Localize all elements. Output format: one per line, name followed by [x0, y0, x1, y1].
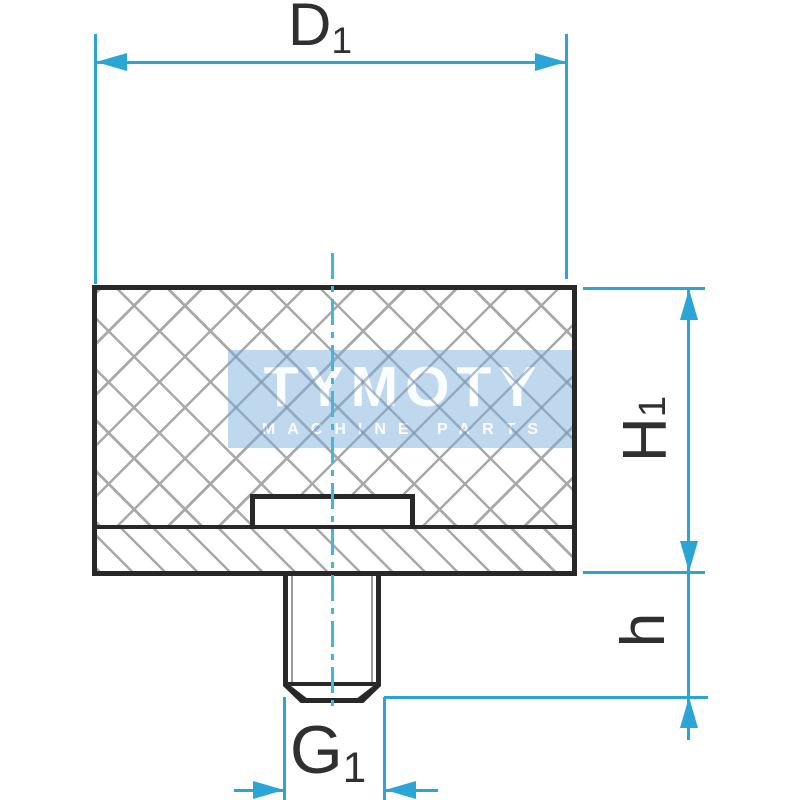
h1-label: H1	[610, 349, 680, 509]
d1-arrowhead-left	[96, 53, 127, 71]
h1-arrowhead-bottom	[680, 541, 698, 572]
thread-minor-line-right	[371, 576, 373, 682]
h-arrowhead-bottom	[680, 697, 698, 728]
centerline	[331, 253, 334, 706]
d1-label: D1	[240, 0, 400, 65]
h1-label-sub: 1	[631, 396, 675, 417]
d1-extension-line-left	[94, 34, 97, 284]
h-label-main: h	[608, 613, 679, 647]
watermark-brand: TYMOTY	[264, 358, 544, 416]
base-plate	[92, 529, 577, 576]
h-label: h	[608, 550, 678, 710]
g1-label: G1	[248, 713, 408, 796]
d1-label-main: D	[288, 0, 331, 58]
h1-label-main: H	[610, 417, 681, 462]
g1-label-sub: 1	[343, 744, 366, 791]
d1-arrowhead-right	[535, 53, 566, 71]
rubber-body: TYMOTY MACHINE PARTS	[92, 285, 577, 529]
watermark-tagline: MACHINE PARTS	[262, 420, 550, 440]
d1-label-sub: 1	[331, 19, 352, 61]
watermark: TYMOTY MACHINE PARTS	[228, 350, 572, 448]
right-dimension-line	[687, 289, 690, 740]
technical-drawing-canvas: TYMOTY MACHINE PARTS D1 H1 h	[0, 0, 800, 800]
thread-minor-line-left	[291, 576, 293, 682]
h1-arrowhead-top	[680, 289, 698, 320]
g1-label-main: G	[290, 712, 343, 788]
